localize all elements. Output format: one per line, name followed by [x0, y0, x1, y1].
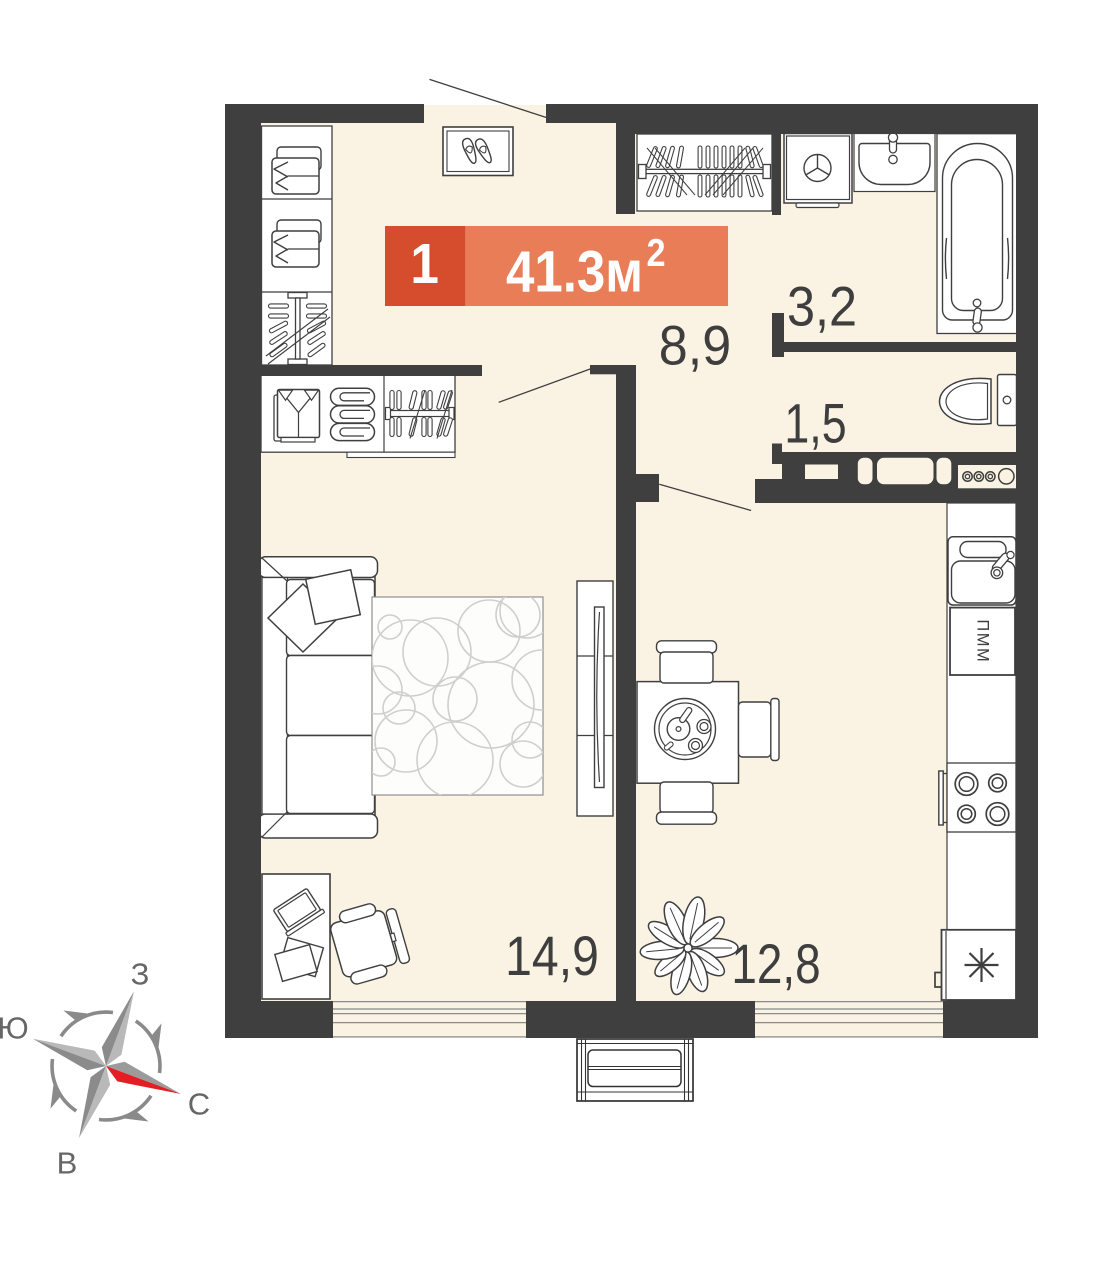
svg-text:2: 2 — [646, 231, 665, 275]
svg-text:41.3м: 41.3м — [506, 240, 643, 305]
svg-text:Ю: Ю — [0, 1011, 29, 1046]
svg-text:1,5: 1,5 — [784, 392, 846, 455]
svg-text:В: В — [57, 1146, 78, 1181]
svg-text:8,9: 8,9 — [659, 315, 731, 377]
svg-text:1: 1 — [410, 232, 439, 295]
svg-text:С: С — [188, 1087, 210, 1122]
svg-text:12,8: 12,8 — [731, 933, 820, 995]
svg-text:ПММ: ПММ — [974, 619, 992, 663]
svg-text:14,9: 14,9 — [505, 926, 599, 988]
svg-text:3,2: 3,2 — [787, 276, 857, 338]
svg-text:З: З — [131, 957, 150, 992]
